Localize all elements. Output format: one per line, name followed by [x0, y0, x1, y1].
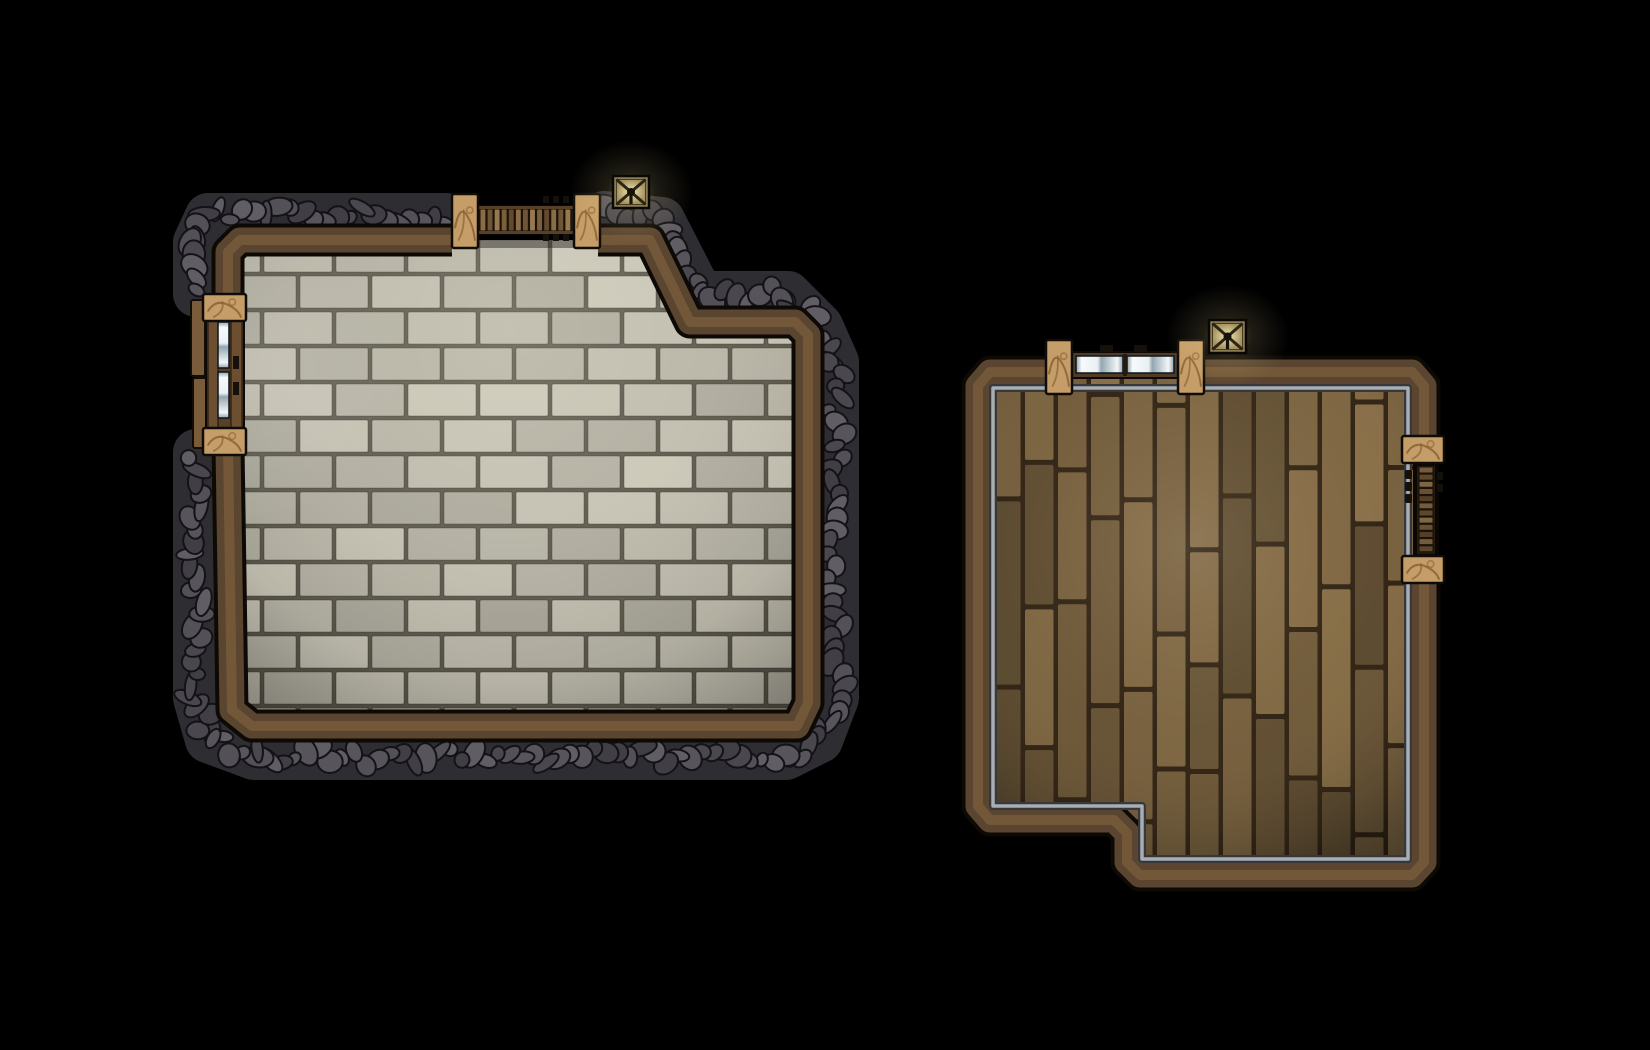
- wood-room-wall-lamp: [1166, 285, 1290, 389]
- battle-map: [0, 0, 1650, 1050]
- wood-room: [960, 220, 1450, 1028]
- battle-map-canvas: [0, 0, 1650, 1050]
- stone-room: [156, 140, 873, 780]
- stone-room-wall-lamp: [569, 140, 693, 244]
- stone-room-west-door: [191, 294, 246, 455]
